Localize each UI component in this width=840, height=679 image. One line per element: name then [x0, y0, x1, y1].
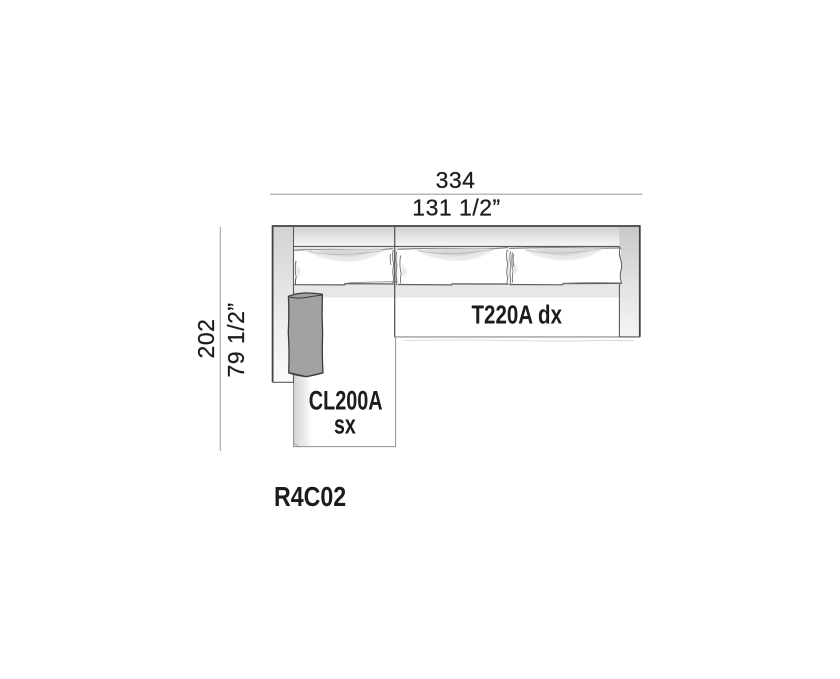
svg-text:131 1/2”: 131 1/2”	[412, 195, 500, 221]
svg-text:R4C02: R4C02	[274, 481, 346, 512]
svg-text:T220A dx: T220A dx	[472, 301, 563, 329]
svg-text:79 1/2”: 79 1/2”	[223, 302, 249, 377]
svg-text:sx: sx	[334, 410, 356, 440]
svg-text:202: 202	[193, 319, 219, 359]
svg-text:334: 334	[436, 167, 476, 193]
